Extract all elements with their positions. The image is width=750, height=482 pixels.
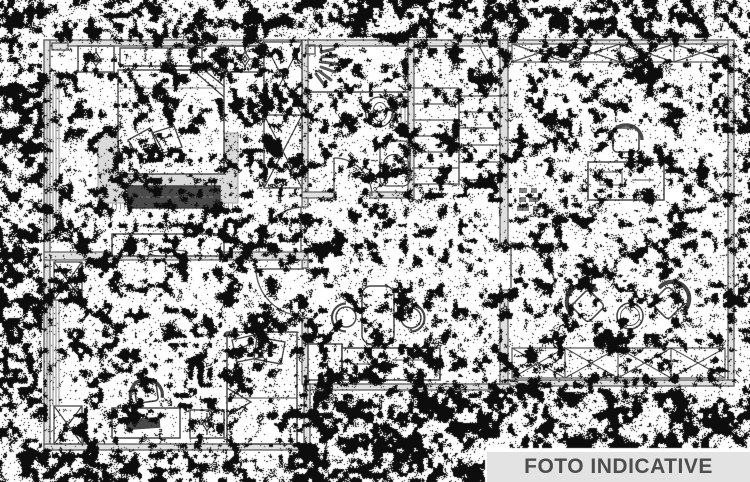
office-chair-icon (128, 377, 163, 404)
double-bed-icon (118, 70, 224, 174)
wall-living-left-lower (500, 290, 508, 384)
floor-plan-drawing (0, 0, 750, 482)
headboard-unit-left (120, 48, 168, 66)
lamp-icon (88, 48, 104, 70)
wall-bathroom-bottom-l (302, 192, 336, 198)
steps-right (459, 96, 500, 180)
wall-bathroom-right (408, 40, 414, 198)
stair-landing-diagonal (478, 44, 500, 84)
shower-icon (306, 45, 337, 86)
island-table-icon (362, 286, 394, 344)
armchair-icon (560, 278, 609, 327)
wall-bathroom-left (302, 40, 308, 207)
tv-cabinet-icon (112, 234, 224, 256)
desk (112, 408, 180, 438)
wall-bottom-living (504, 380, 734, 386)
stool-icon (332, 304, 356, 332)
wall-bathroom-bottom-r (370, 192, 414, 198)
toilet-icon (366, 97, 409, 127)
door-bedroom-2 (256, 268, 304, 316)
wall-hall-low (302, 318, 308, 384)
watermark-label: FOTO INDICATIVE (524, 455, 713, 479)
washbasin-icon (380, 141, 410, 186)
wardrobe-icon (264, 42, 302, 188)
round-table-icon (617, 303, 643, 329)
stool-icon (401, 305, 425, 332)
wall-bottom-kitchen (304, 384, 510, 390)
office-chair-icon (610, 125, 642, 158)
railing-x-band-bottom (512, 348, 725, 378)
wall-right (728, 40, 734, 386)
door-bedroom-1 (259, 207, 304, 252)
column-x-icon (54, 262, 82, 444)
armchair-icon (647, 275, 696, 324)
room-area-label (517, 188, 539, 211)
wall-living-left-upper (500, 40, 508, 243)
headboard-unit-right (170, 48, 202, 66)
appliance-box (308, 344, 342, 380)
floor-plan-photo: FOTO INDICATIVE (0, 0, 750, 482)
lamp-icon (237, 48, 253, 70)
wall-jog (304, 384, 310, 450)
wall-nib (52, 43, 68, 50)
single-bed-icon (227, 332, 297, 444)
photo-watermark-banner: FOTO INDICATIVE (487, 452, 750, 482)
staircase-icon (412, 44, 500, 184)
steps-left (412, 88, 459, 184)
kitchen-hall (308, 286, 440, 380)
living-room (512, 44, 728, 378)
wardrobe-x-band-top (512, 44, 728, 62)
door-living-room (511, 243, 555, 288)
desk (588, 162, 664, 200)
door-bathroom (334, 158, 372, 196)
wall-bottom-left (44, 444, 310, 450)
bedroom-1 (47, 42, 302, 256)
bedroom-2 (47, 262, 297, 444)
